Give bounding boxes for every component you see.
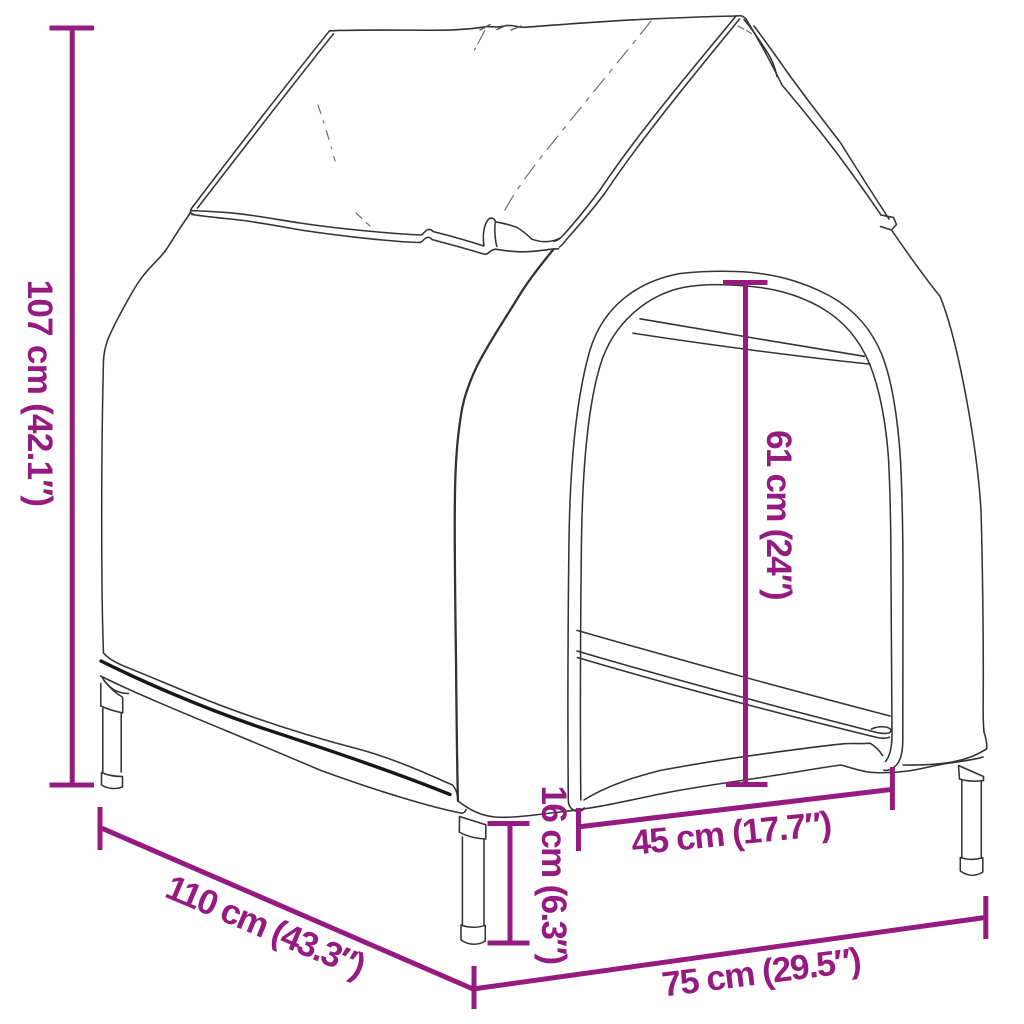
svg-text:107 cm (42.1″): 107 cm (42.1″)	[20, 280, 59, 507]
svg-text:16 cm (6.3″): 16 cm (6.3″)	[534, 785, 573, 963]
svg-text:61 cm (24″): 61 cm (24″)	[759, 430, 798, 599]
